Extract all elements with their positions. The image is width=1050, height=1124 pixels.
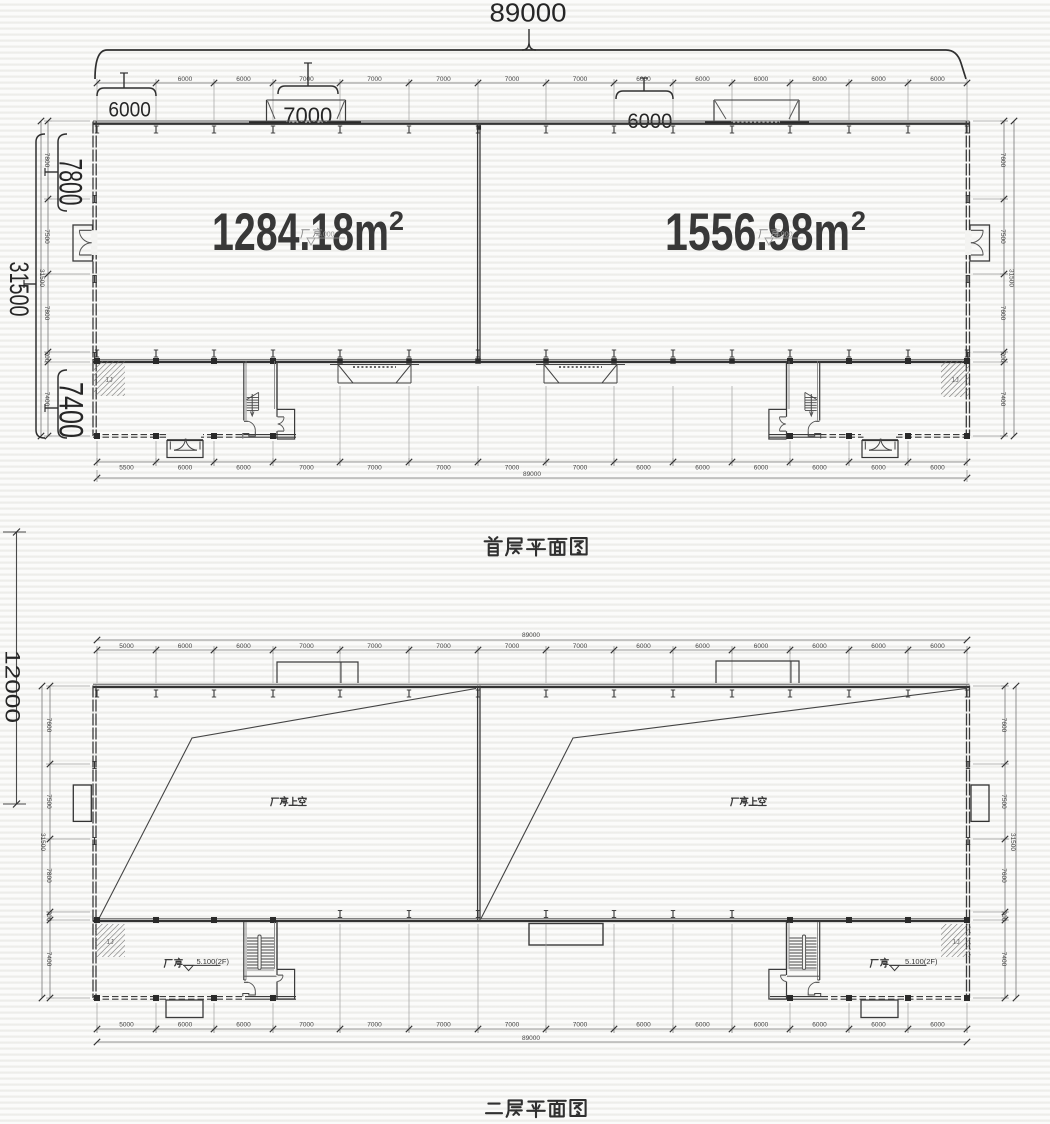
svg-text:7600: 7600 [999,306,1006,321]
svg-text:6000: 6000 [871,76,886,83]
svg-text:7000: 7000 [436,1022,451,1029]
svg-text:12000: 12000 [1,650,24,723]
svg-text:6000: 6000 [178,643,193,650]
svg-text:7800: 7800 [43,153,50,168]
svg-text:700: 700 [1000,911,1007,922]
svg-text:6000: 6000 [695,1022,710,1029]
svg-text:7000: 7000 [573,465,588,472]
svg-text:5500: 5500 [119,465,134,472]
svg-text:7500: 7500 [45,794,52,809]
svg-text:31500: 31500 [38,269,45,287]
svg-text:7400: 7400 [45,952,52,967]
svg-text:6000: 6000 [695,76,710,83]
svg-text:7000: 7000 [299,465,314,472]
svg-text:6000: 6000 [754,1022,769,1029]
svg-text:6000: 6000 [236,76,251,83]
svg-text:1J: 1J [952,939,959,946]
svg-text:6000: 6000 [930,465,945,472]
svg-text:6000: 6000 [236,465,251,472]
svg-text:1J: 1J [105,377,112,384]
svg-text:6000: 6000 [636,1022,651,1029]
svg-text:2: 2 [389,206,404,236]
svg-text:7000: 7000 [505,465,520,472]
svg-text:7000: 7000 [367,643,382,650]
svg-text:6000: 6000 [108,98,151,122]
svg-text:5000: 5000 [119,1022,134,1029]
svg-text:89000: 89000 [523,471,541,478]
svg-text:7500: 7500 [999,229,1006,244]
svg-text:7800: 7800 [43,306,50,321]
svg-text:5000: 5000 [119,643,134,650]
svg-text:6000: 6000 [754,465,769,472]
svg-text:1J: 1J [951,377,958,384]
svg-text:6000: 6000 [871,465,886,472]
svg-text:7600: 7600 [999,153,1006,168]
svg-text:2: 2 [851,206,866,236]
svg-text:6000: 6000 [930,1022,945,1029]
svg-text:89000: 89000 [522,1035,540,1042]
svg-text:6000: 6000 [812,1022,827,1029]
svg-text:700: 700 [999,352,1006,363]
svg-text:7000: 7000 [505,643,520,650]
svg-text:1284.18m: 1284.18m [212,203,389,262]
svg-text:6000: 6000 [871,1022,886,1029]
svg-text:7000: 7000 [299,643,314,650]
svg-text:6000: 6000 [178,76,193,83]
svg-text:7000: 7000 [573,76,588,83]
svg-text:6000: 6000 [871,643,886,650]
svg-text:7600: 7600 [1000,868,1007,883]
svg-text:7000: 7000 [299,1022,314,1029]
svg-text:31500: 31500 [1008,269,1015,287]
svg-text:4.000: 4.000 [317,232,335,239]
svg-text:5.100(2F): 5.100(2F) [197,957,230,966]
svg-text:7000: 7000 [367,465,382,472]
svg-text:7000: 7000 [367,1022,382,1029]
svg-text:6000: 6000 [695,465,710,472]
svg-text:7400: 7400 [43,392,50,407]
svg-text:7600: 7600 [45,718,52,733]
svg-text:6000: 6000 [754,643,769,650]
svg-text:7000: 7000 [573,643,588,650]
svg-text:7000: 7000 [299,76,314,83]
svg-text:6000: 6000 [812,76,827,83]
svg-text:6000: 6000 [236,643,251,650]
svg-text:6000: 6000 [695,643,710,650]
svg-text:6000: 6000 [812,643,827,650]
svg-text:5.100(2F): 5.100(2F) [905,957,938,966]
svg-text:1J: 1J [106,939,113,946]
svg-text:7500: 7500 [43,229,50,244]
svg-text:700: 700 [45,911,52,922]
svg-text:6000: 6000 [178,465,193,472]
svg-text:700: 700 [43,352,50,363]
svg-text:89000: 89000 [522,632,540,639]
svg-text:31500: 31500 [39,833,46,851]
svg-text:4.000: 4.000 [775,232,793,239]
svg-text:7400: 7400 [999,392,1006,407]
svg-text:6000: 6000 [236,1022,251,1029]
svg-text:6000: 6000 [754,76,769,83]
svg-text:31500: 31500 [4,262,34,317]
svg-text:7400: 7400 [52,382,90,438]
svg-text:6000: 6000 [178,1022,193,1029]
svg-text:7000: 7000 [436,76,451,83]
svg-text:1556.98m: 1556.98m [665,203,850,262]
svg-text:7000: 7000 [436,465,451,472]
svg-text:6000: 6000 [636,643,651,650]
svg-text:7000: 7000 [436,643,451,650]
svg-text:6000: 6000 [812,465,827,472]
svg-text:7800: 7800 [45,868,52,883]
svg-text:7500: 7500 [1000,794,1007,809]
svg-text:7000: 7000 [505,1022,520,1029]
svg-text:7400: 7400 [1000,952,1007,967]
svg-text:31500: 31500 [1009,833,1016,851]
svg-text:6000: 6000 [930,643,945,650]
svg-text:7800: 7800 [53,159,89,206]
svg-text:6000: 6000 [930,76,945,83]
svg-text:7000: 7000 [573,1022,588,1029]
svg-text:7000: 7000 [367,76,382,83]
svg-text:6000: 6000 [636,465,651,472]
svg-text:89000: 89000 [490,0,567,28]
svg-text:7600: 7600 [1000,718,1007,733]
svg-text:7000: 7000 [505,76,520,83]
